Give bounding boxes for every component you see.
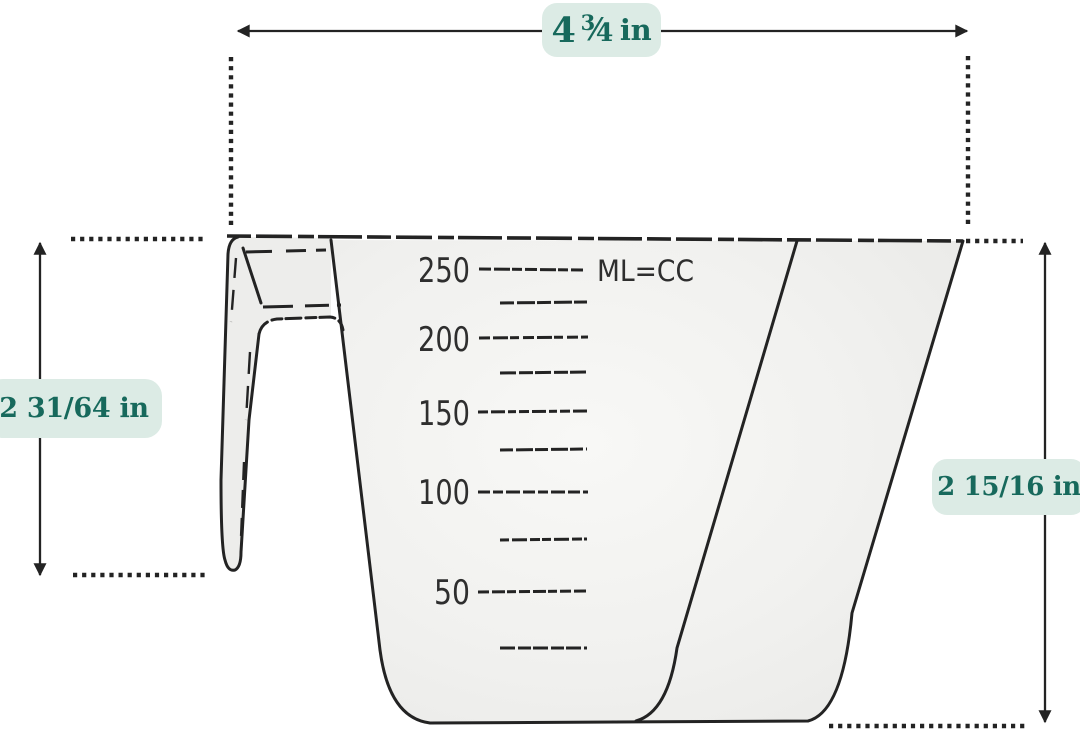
scale-label-100: 100 bbox=[418, 473, 470, 513]
left-height-dimension-badge: 2 31/64 in bbox=[0, 379, 162, 438]
scale-label-150: 150 bbox=[418, 394, 470, 434]
scale-label-200: 200 bbox=[418, 320, 470, 360]
tick-minor-175 bbox=[500, 372, 587, 373]
right-height-dimension-badge: 2 15/16 in bbox=[932, 459, 1080, 515]
width-unit: in bbox=[620, 13, 652, 47]
diagram-canvas: 250 200 150 100 50 ML=CC 4 3 ⁄ 4 in 2 31… bbox=[0, 0, 1080, 736]
handle-opening-edge bbox=[259, 317, 343, 334]
cup-handle-fill bbox=[221, 237, 331, 570]
tick-major-200 bbox=[479, 337, 588, 338]
scale-unit-label: ML=CC bbox=[597, 254, 694, 288]
width-whole-number: 4 bbox=[552, 13, 576, 48]
scale-label-250: 250 bbox=[418, 251, 470, 291]
scale-label-50: 50 bbox=[434, 573, 470, 613]
width-fraction: 3 ⁄ 4 bbox=[581, 12, 613, 48]
measuring-cup-drawing: 250 200 150 100 50 ML=CC bbox=[0, 0, 1080, 736]
width-dimension-badge: 4 3 ⁄ 4 in bbox=[542, 3, 661, 57]
width-fraction-numerator: 3 bbox=[581, 10, 595, 35]
left-height-value: 2 31/64 in bbox=[0, 393, 149, 424]
right-height-value: 2 15/16 in bbox=[937, 472, 1080, 502]
width-fraction-denominator: 4 bbox=[596, 18, 613, 47]
tick-minor-75 bbox=[500, 539, 587, 540]
